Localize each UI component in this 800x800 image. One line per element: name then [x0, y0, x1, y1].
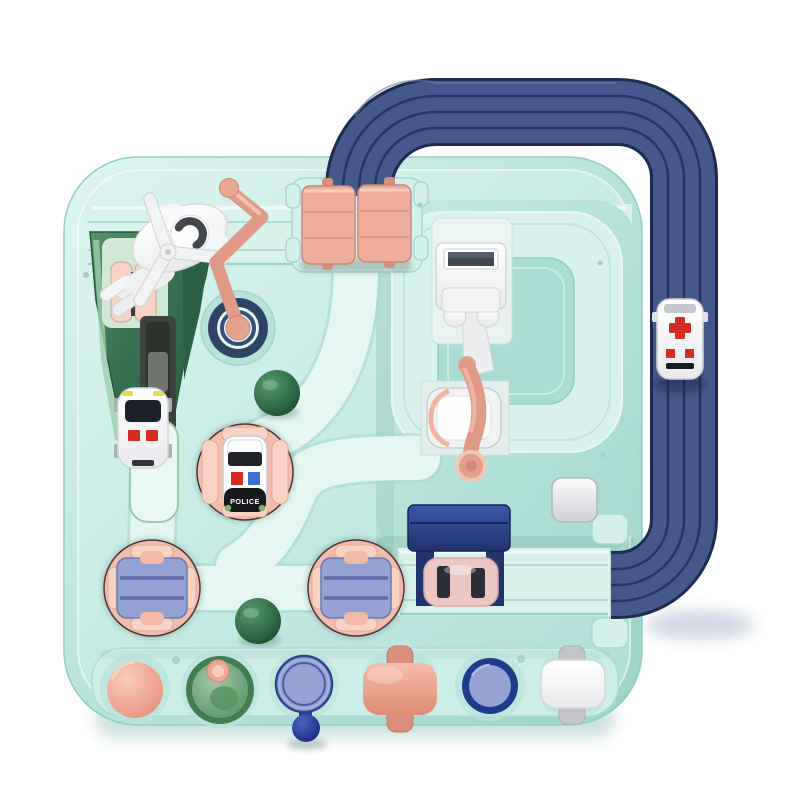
green-ball-lower — [235, 598, 281, 647]
crane-head — [436, 243, 506, 312]
gate-door-left — [302, 186, 355, 264]
green-ball-upper — [254, 370, 300, 419]
navy-ring-button — [462, 658, 518, 714]
white-car — [114, 388, 172, 468]
playset-scene: POLICE — [0, 0, 800, 800]
blue-track-shadow — [645, 611, 755, 639]
green-funnel-button — [186, 656, 254, 724]
strip-hole-right — [517, 655, 525, 663]
police-label: POLICE — [230, 497, 260, 506]
gate-door-right — [358, 185, 411, 262]
turntable-right — [306, 538, 406, 638]
strip-hole-left — [172, 656, 180, 664]
police-turntable: POLICE — [195, 422, 295, 522]
turntable-left — [102, 538, 202, 638]
ambulance — [652, 299, 708, 393]
pink-dome-button — [107, 662, 163, 718]
lever-ball — [292, 714, 320, 742]
police-car: POLICE — [223, 436, 267, 512]
crane-bed — [427, 388, 501, 448]
pink-car — [424, 558, 498, 606]
white-cube-buffer — [552, 478, 597, 522]
toy-playset-photo: POLICE — [0, 0, 800, 800]
tunnel-roof — [408, 505, 510, 551]
bottom-control-strip — [92, 648, 618, 728]
